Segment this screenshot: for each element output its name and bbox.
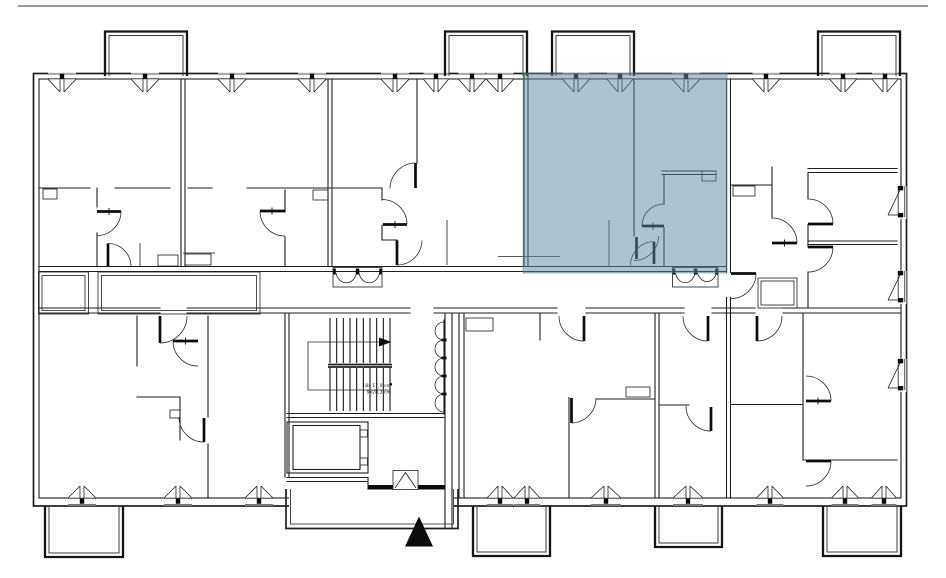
balconies-top [105,32,900,77]
highlighted-unit-overlay[interactable] [523,73,727,273]
unit-entry-door-icon [333,268,382,288]
balcony [473,506,550,556]
units-top [39,79,447,267]
door-icon [757,316,782,341]
stair-dimension-line1: 18x 17,0 cm [362,383,391,389]
building-shell [34,74,907,509]
balcony [823,506,901,556]
door-icon [179,417,204,442]
window-icon [514,486,540,506]
door-icon [686,406,711,431]
door-icon [260,208,285,237]
window-icon [888,359,906,392]
window-icon [872,73,898,92]
door-icon [559,316,584,341]
floor-plan-canvas: 18x 17,0 cm 9x28,3 cm [0,0,946,578]
elevator [287,422,368,489]
unit-top-right [727,79,898,497]
window-icon [68,486,96,506]
window-icon [832,486,859,506]
door-icon [808,247,833,272]
door-icon [397,241,422,266]
door-icon [160,316,187,343]
window-icon [48,73,76,92]
balcony [818,32,900,77]
door-icon [806,376,831,405]
door-icon [806,461,831,486]
door-icon [382,200,407,229]
window-icon [218,73,246,92]
window-icon [888,186,906,219]
entrance-door-icon [393,471,418,490]
balcony [105,32,187,77]
window-icon [591,486,621,506]
window-icon [673,486,703,506]
door-icon [772,218,797,247]
window-icon [830,73,857,92]
stair-walkline [308,342,390,390]
units-bottom [137,313,897,498]
window-icon [164,486,192,506]
door-icon [683,316,708,341]
window-icon [872,486,897,506]
balcony [445,32,527,77]
door-icon [390,163,416,189]
entrance-marker-icon [405,517,433,547]
balcony [552,32,634,77]
door-icon [173,338,198,367]
window-icon [459,73,486,92]
stair-dimension-line2: 9x28,3 cm [367,390,392,396]
windows-bottom [68,486,897,506]
window-icon [487,73,514,92]
balconies-bottom [45,506,901,557]
corridor [39,267,902,315]
page: 18x 17,0 cm 9x28,3 cm [0,0,946,578]
window-icon [131,73,159,92]
windows-top [48,73,898,92]
door-icon [808,199,833,224]
balcony [655,506,722,547]
window-icon [487,486,513,506]
window-icon [298,73,326,92]
door-icon [731,274,756,299]
balcony [45,506,123,557]
door-icon [572,398,597,423]
door-icon [97,208,121,236]
window-icon [888,271,906,304]
window-icon [245,486,273,506]
door-icon [108,244,131,267]
stair-landing-edge [328,365,392,368]
window-icon [753,73,780,92]
windows-right [888,186,906,392]
window-icon [381,73,409,92]
window-icon [757,486,784,506]
stair-dimension-dot [390,383,392,385]
